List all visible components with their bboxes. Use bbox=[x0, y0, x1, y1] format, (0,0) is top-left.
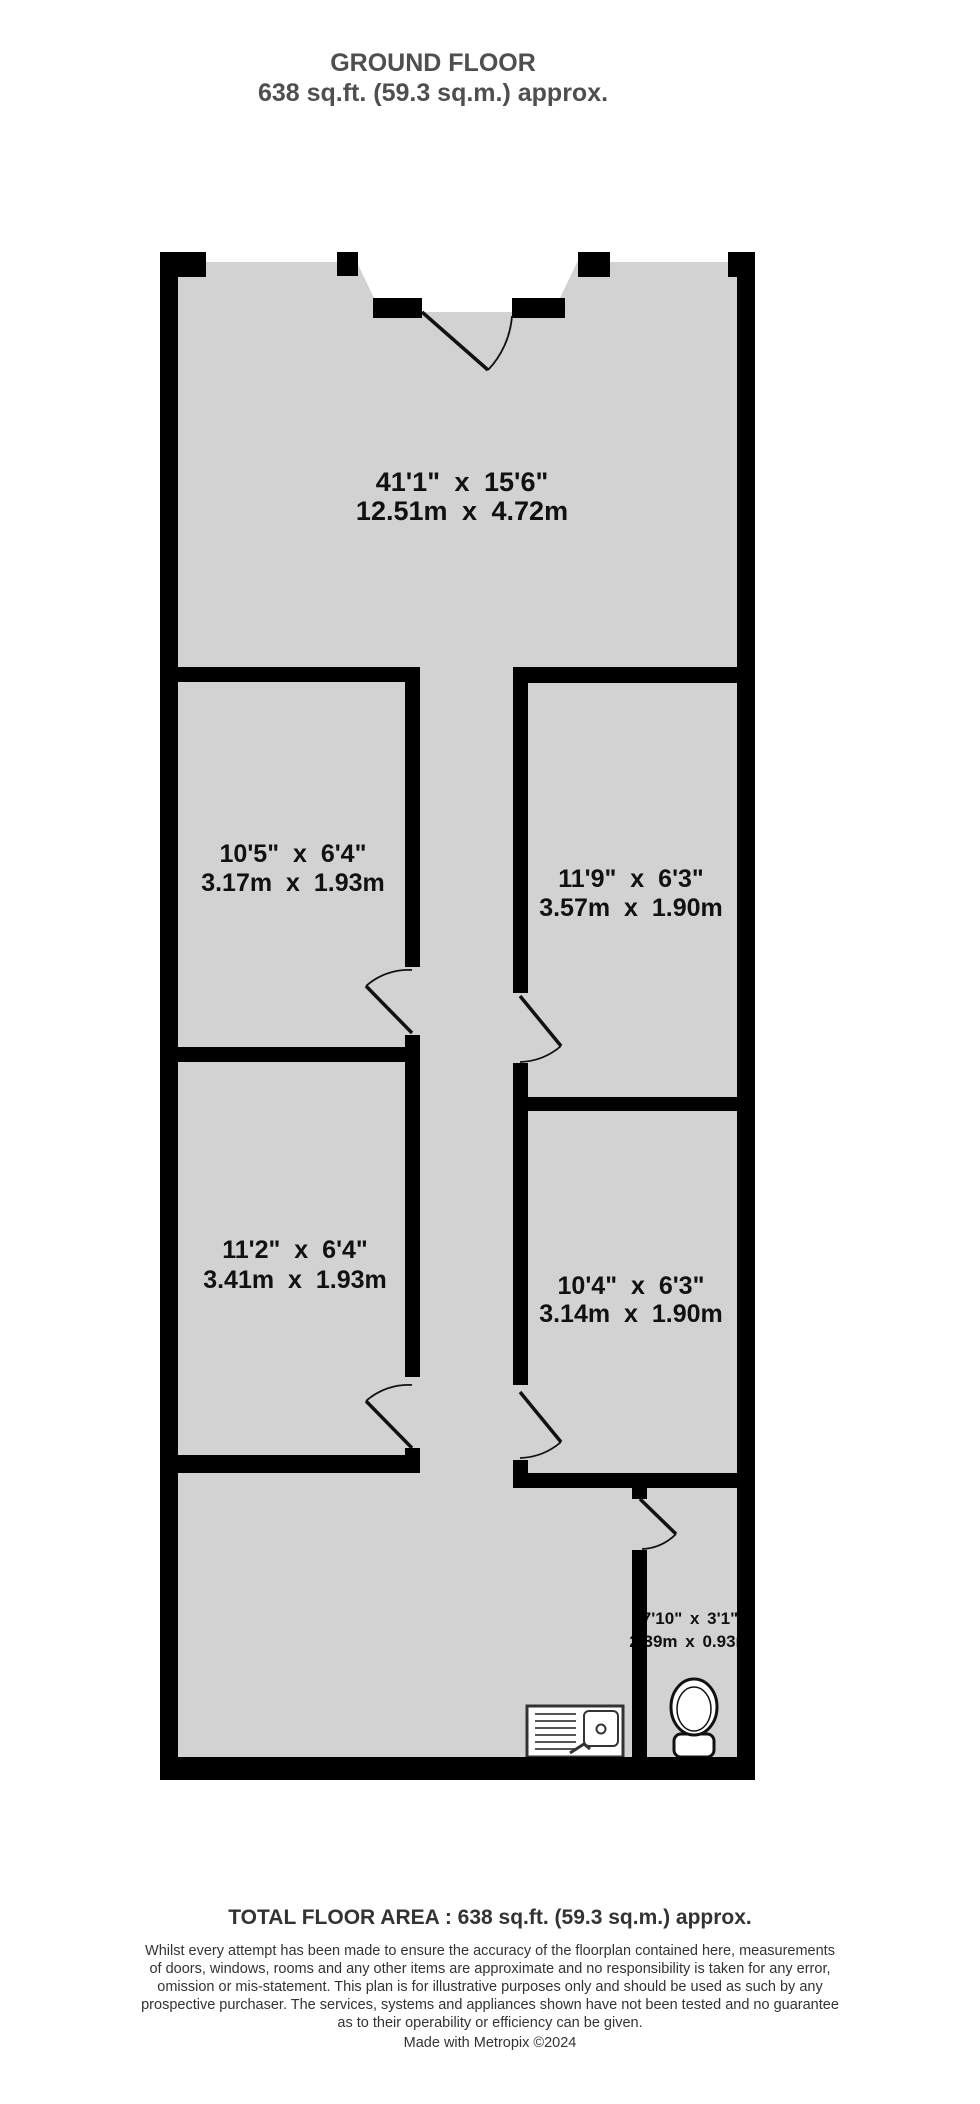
wall-top-right-corner bbox=[728, 252, 755, 277]
disclaimer-line: of doors, windows, rooms and any other i… bbox=[0, 1960, 980, 1978]
left-room-2-metric: 3.41m x 1.93m bbox=[203, 1266, 387, 1294]
wall-mid-left bbox=[178, 1047, 420, 1062]
main-room-metric: 12.51m x 4.72m bbox=[356, 496, 568, 526]
main-room-imperial: 41'1" x 15'6" bbox=[376, 467, 549, 497]
disclaimer-line: Whilst every attempt has been made to en… bbox=[0, 1942, 980, 1960]
disclaimer-line: prospective purchaser. The services, sys… bbox=[0, 1996, 980, 2014]
wall-bottom-right-rooms bbox=[513, 1473, 737, 1488]
sink-icon bbox=[527, 1706, 623, 1757]
wall-row1-left bbox=[178, 667, 420, 682]
right-room-2-imperial: 10'4" x 6'3" bbox=[558, 1272, 705, 1300]
wall-mid-right bbox=[513, 1097, 737, 1111]
wall-wc bbox=[632, 1550, 647, 1757]
toilet-icon bbox=[671, 1679, 717, 1757]
wall-corridor-right-a bbox=[513, 667, 528, 993]
wall-top-mid-left bbox=[337, 252, 358, 276]
disclaimer-line: as to their operability or efficiency ca… bbox=[0, 2014, 980, 2032]
wall-corridor-left-a bbox=[405, 667, 420, 967]
entry-jamb-right bbox=[512, 298, 565, 318]
left-room-1-metric: 3.17m x 1.93m bbox=[201, 869, 385, 897]
floorplan-page: GROUND FLOOR 638 sq.ft. (59.3 sq.m.) app… bbox=[0, 0, 980, 2104]
left-room-2-imperial: 11'2" x 6'4" bbox=[222, 1236, 368, 1264]
footer: TOTAL FLOOR AREA : 638 sq.ft. (59.3 sq.m… bbox=[0, 1906, 980, 2052]
entry-jamb-left bbox=[373, 298, 422, 318]
right-room-2-metric: 3.14m x 1.90m bbox=[539, 1300, 723, 1328]
wall-outer-left bbox=[160, 252, 178, 1780]
wc-imperial: 7'10" x 3'1" bbox=[642, 1609, 738, 1628]
metropix-credit: Made with Metropix ©2024 bbox=[0, 2034, 980, 2052]
right-room-1-metric: 3.57m x 1.90m bbox=[539, 894, 723, 922]
wall-corridor-right-b bbox=[513, 1063, 528, 1385]
wall-outer-right bbox=[737, 252, 755, 1780]
right-room-1-imperial: 11'9" x 6'3" bbox=[558, 865, 704, 893]
wall-row1-right bbox=[513, 667, 737, 683]
wall-outer-bottom bbox=[160, 1757, 755, 1780]
left-room-1-imperial: 10'5" x 6'4" bbox=[220, 840, 367, 868]
wall-wc-stub bbox=[632, 1488, 647, 1499]
wall-top-mid-right bbox=[578, 252, 610, 277]
wall-bottom-left-rooms bbox=[178, 1455, 420, 1473]
total-floor-area: TOTAL FLOOR AREA : 638 sq.ft. (59.3 sq.m… bbox=[0, 1906, 980, 1930]
wall-corridor-left-b bbox=[405, 1035, 420, 1377]
wall-top-left-corner bbox=[160, 252, 206, 277]
disclaimer-line: omission or mis-statement. This plan is … bbox=[0, 1978, 980, 1996]
disclaimer: Whilst every attempt has been made to en… bbox=[0, 1942, 980, 2032]
floorplan-drawing: 41'1" x 15'6" 12.51m x 4.72m 10'5" x 6'4… bbox=[0, 0, 980, 2104]
wc-metric: 2.39m x 0.93m bbox=[629, 1632, 750, 1651]
